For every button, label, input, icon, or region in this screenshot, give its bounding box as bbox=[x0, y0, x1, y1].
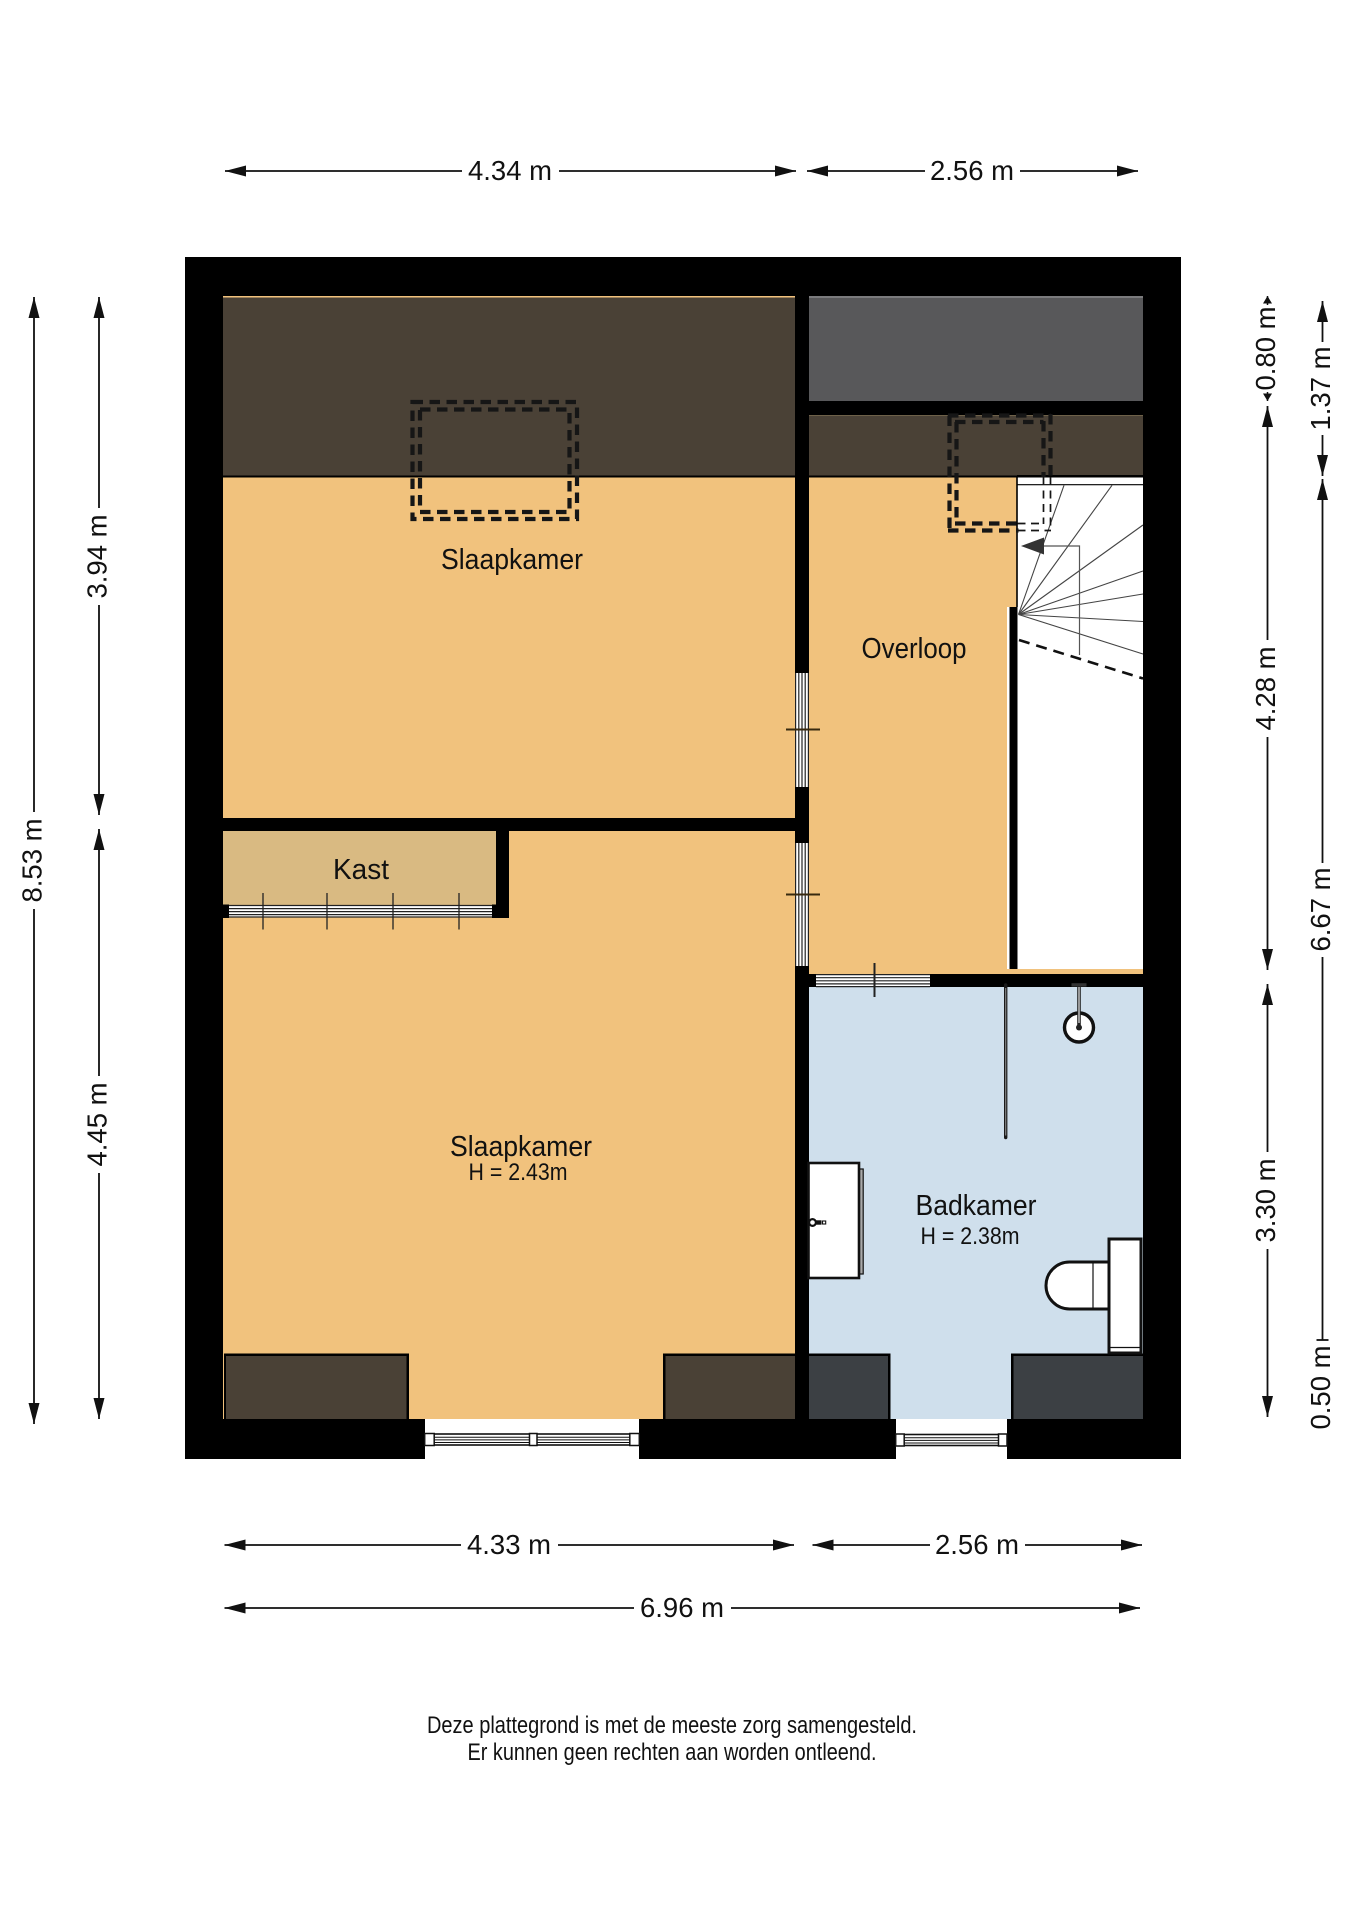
svg-text:Er kunnen geen rechten aan wor: Er kunnen geen rechten aan worden ontlee… bbox=[468, 1739, 877, 1766]
svg-text:Overloop: Overloop bbox=[862, 633, 967, 665]
svg-text:4.33 m: 4.33 m bbox=[467, 1529, 551, 1560]
svg-text:2.56 m: 2.56 m bbox=[935, 1529, 1019, 1560]
svg-text:4.34 m: 4.34 m bbox=[468, 155, 552, 186]
svg-text:Kast: Kast bbox=[333, 854, 389, 886]
svg-text:H = 2.38m: H = 2.38m bbox=[921, 1223, 1020, 1250]
svg-text:0.80 m: 0.80 m bbox=[1250, 307, 1281, 391]
svg-text:3.30 m: 3.30 m bbox=[1250, 1159, 1281, 1243]
svg-text:3.94 m: 3.94 m bbox=[82, 515, 113, 599]
svg-text:Deze plattegrond is met de mee: Deze plattegrond is met de meeste zorg s… bbox=[427, 1712, 917, 1739]
svg-text:Badkamer: Badkamer bbox=[916, 1190, 1037, 1222]
svg-text:2.56 m: 2.56 m bbox=[930, 155, 1014, 186]
svg-text:4.28 m: 4.28 m bbox=[1250, 647, 1281, 731]
svg-text:Slaapkamer: Slaapkamer bbox=[441, 544, 583, 576]
svg-text:6.67 m: 6.67 m bbox=[1305, 868, 1336, 952]
svg-text:1.37 m: 1.37 m bbox=[1305, 347, 1336, 431]
svg-text:8.53 m: 8.53 m bbox=[17, 819, 48, 903]
svg-text:6.96 m: 6.96 m bbox=[640, 1592, 724, 1623]
svg-text:H = 2.43m: H = 2.43m bbox=[469, 1159, 568, 1186]
svg-text:0.50 m: 0.50 m bbox=[1305, 1346, 1336, 1430]
svg-text:4.45 m: 4.45 m bbox=[82, 1083, 113, 1167]
